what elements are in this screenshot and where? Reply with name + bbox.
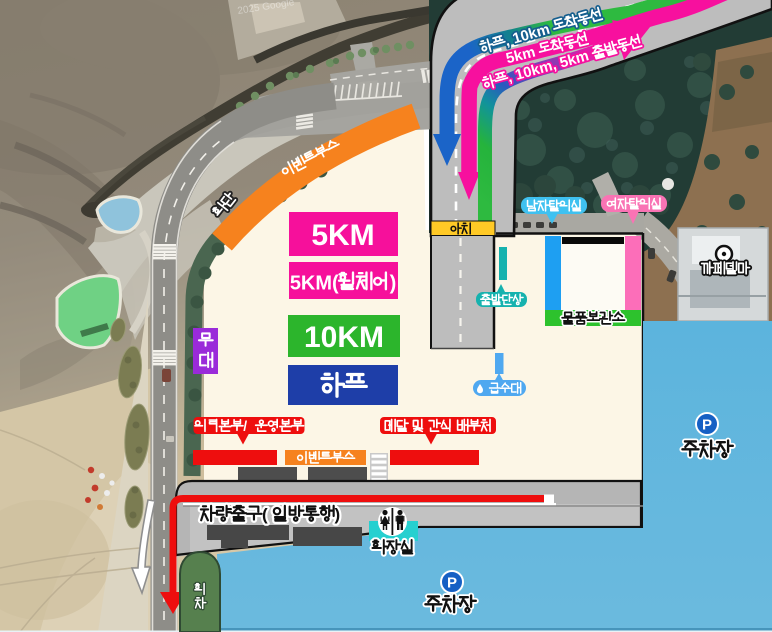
svg-text:/: / [243, 418, 247, 434]
svg-text:10KM: 10KM [304, 321, 384, 354]
svg-text:P: P [702, 417, 712, 434]
svg-text:P: P [447, 575, 457, 592]
svg-text:5KM(: 5KM( [290, 273, 339, 295]
svg-text:5KM: 5KM [311, 219, 374, 252]
svg-text:(: ( [262, 505, 268, 524]
svg-text:): ) [390, 273, 397, 295]
svg-text:): ) [335, 505, 341, 524]
